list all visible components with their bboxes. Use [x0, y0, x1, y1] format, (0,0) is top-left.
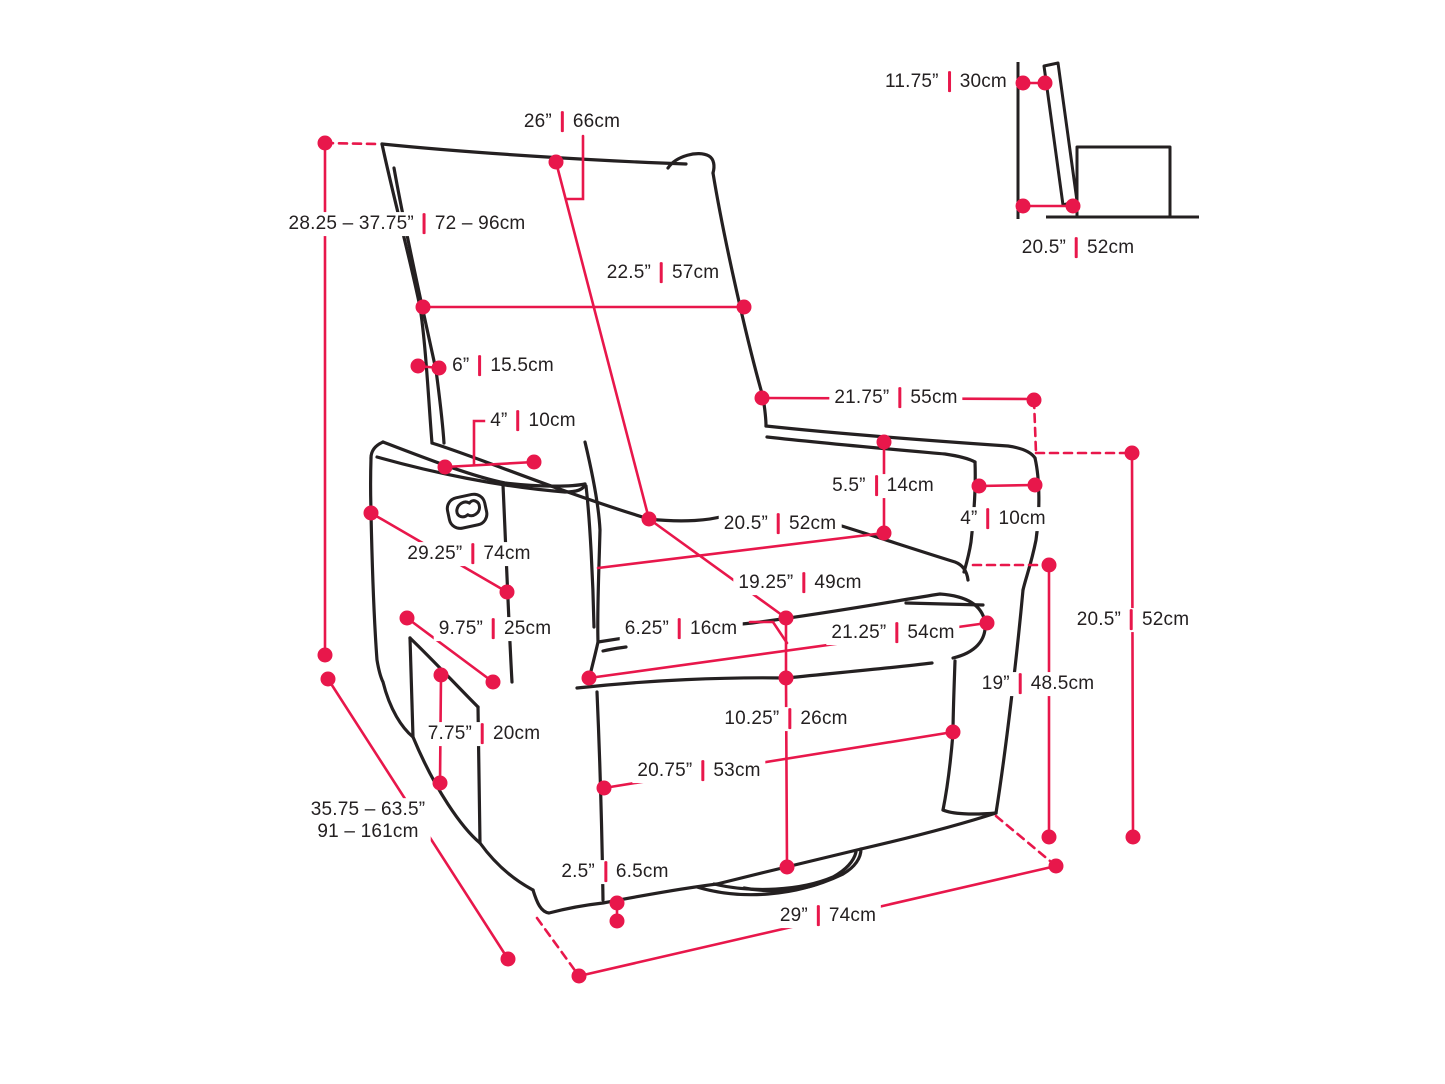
- cm-value: 53cm: [713, 760, 760, 782]
- unit-separator: [777, 514, 780, 535]
- dimension-label-overall-height-range: 28.25 – 37.75” 72 – 96cm: [284, 212, 531, 236]
- dimension-label-backrest-width: 22.5” 57cm: [602, 261, 725, 285]
- dimension-label-side-view-back-depth: 11.75” 30cm: [880, 70, 1012, 94]
- unit-separator: [701, 761, 704, 782]
- unit-separator: [478, 356, 481, 377]
- dimension-label-overall-width-diagonal: 29.25” 74cm: [402, 542, 535, 566]
- dimension-label-base-front-width: 21.25” 54cm: [826, 621, 959, 645]
- inches-value: 20.5”: [1077, 609, 1121, 631]
- cm-value: 54cm: [907, 622, 954, 644]
- inches-value: 28.25 – 37.75”: [289, 213, 414, 235]
- cm-value: 72 – 96cm: [435, 213, 526, 235]
- cm-value: 20cm: [493, 723, 540, 745]
- inches-value: 26”: [524, 111, 552, 133]
- inches-value: 6”: [452, 355, 469, 377]
- cm-value: 91 – 161cm: [311, 821, 426, 843]
- dimension-label-backrest-thickness: 6” 15.5cm: [447, 354, 559, 378]
- unit-separator: [788, 709, 791, 730]
- inches-value: 20.5”: [1022, 237, 1066, 259]
- inches-value: 29”: [780, 905, 808, 927]
- inches-value: 35.75 – 63.5”: [311, 799, 426, 821]
- unit-separator: [1019, 674, 1022, 695]
- cm-value: 55cm: [910, 387, 957, 409]
- unit-separator: [1075, 238, 1078, 259]
- cm-value: 52cm: [1142, 609, 1189, 631]
- dimension-label-left-armrest-width: 4” 10cm: [485, 409, 581, 433]
- cm-value: 66cm: [573, 111, 620, 133]
- dimension-label-seat-depth: 19.25” 49cm: [733, 571, 866, 595]
- cm-value: 52cm: [1087, 237, 1134, 259]
- dimension-label-base-clearance: 2.5” 6.5cm: [556, 860, 673, 884]
- unit-separator: [423, 214, 426, 235]
- unit-separator: [561, 112, 564, 133]
- inches-value: 2.5”: [561, 861, 595, 883]
- unit-separator: [948, 72, 951, 93]
- unit-separator: [987, 509, 990, 530]
- dimension-label-extended-depth-range: 35.75 – 63.5” 91 – 161cm: [306, 798, 431, 844]
- cm-value: 10cm: [999, 508, 1046, 530]
- cm-value: 30cm: [960, 71, 1007, 93]
- unit-separator: [875, 476, 878, 497]
- cm-value: 52cm: [789, 513, 836, 535]
- unit-separator: [817, 906, 820, 927]
- unit-separator: [517, 411, 520, 432]
- unit-separator: [492, 619, 495, 640]
- inches-value: 29.25”: [407, 543, 462, 565]
- cm-value: 57cm: [672, 262, 719, 284]
- unit-separator: [604, 862, 607, 883]
- inches-value: 9.75”: [439, 618, 483, 640]
- dimension-label-seat-cushion-thickness: 6.25” 16cm: [620, 617, 743, 641]
- unit-separator: [481, 724, 484, 745]
- cm-value: 74cm: [829, 905, 876, 927]
- dimension-label-base-height: 10.25” 26cm: [719, 707, 852, 731]
- dimension-label-inner-seat-width: 21.75” 55cm: [829, 386, 962, 410]
- inches-value: 19”: [982, 673, 1010, 695]
- dimension-diagram: 26” 66cm 28.25 – 37.75” 72 – 96cm 22.5” …: [0, 0, 1445, 1084]
- cm-value: 16cm: [690, 618, 737, 640]
- dimension-label-back-top-width: 26” 66cm: [519, 110, 625, 134]
- unit-separator: [1130, 610, 1133, 631]
- cm-value: 10cm: [529, 410, 576, 432]
- unit-separator: [678, 619, 681, 640]
- cm-value: 15.5cm: [490, 355, 554, 377]
- dimension-label-arm-height-floor: 20.5” 52cm: [1072, 608, 1195, 632]
- unit-separator: [471, 544, 474, 565]
- chair-outline: [371, 144, 1039, 913]
- cm-value: 48.5cm: [1031, 673, 1095, 695]
- unit-separator: [802, 573, 805, 594]
- inches-value: 10.25”: [724, 708, 779, 730]
- unit-separator: [895, 623, 898, 644]
- inches-value: 19.25”: [738, 572, 793, 594]
- dimension-label-pocket-width: 9.75” 25cm: [434, 617, 557, 641]
- inches-value: 4”: [490, 410, 507, 432]
- dimension-label-seat-width: 20.5” 52cm: [719, 512, 842, 536]
- inches-value: 6.25”: [625, 618, 669, 640]
- cm-value: 14cm: [887, 475, 934, 497]
- diagram-line-art: [0, 0, 1445, 1084]
- cm-value: 6.5cm: [616, 861, 669, 883]
- cm-value: 49cm: [814, 572, 861, 594]
- inches-value: 11.75”: [885, 71, 939, 93]
- dimension-label-seat-height: 19” 48.5cm: [977, 672, 1100, 696]
- power-button-icon: [445, 492, 489, 530]
- dimension-label-right-armrest-width: 4” 10cm: [955, 507, 1051, 531]
- unit-separator: [898, 388, 901, 409]
- cm-value: 25cm: [504, 618, 551, 640]
- inches-value: 7.75”: [428, 723, 472, 745]
- cm-value: 74cm: [483, 543, 530, 565]
- inches-value: 5.5”: [832, 475, 866, 497]
- dimension-label-base-depth: 20.75” 53cm: [632, 759, 765, 783]
- inches-value: 20.5”: [724, 513, 768, 535]
- dimension-label-overall-base-width: 29” 74cm: [775, 904, 881, 928]
- inches-value: 21.25”: [831, 622, 886, 644]
- unit-separator: [660, 263, 663, 284]
- dimension-label-side-view-seat-depth: 20.5” 52cm: [1017, 236, 1140, 260]
- cm-value: 26cm: [800, 708, 847, 730]
- inches-value: 4”: [960, 508, 977, 530]
- inches-value: 20.75”: [637, 760, 692, 782]
- inches-value: 21.75”: [834, 387, 889, 409]
- dimension-label-pocket-height: 7.75” 20cm: [423, 722, 546, 746]
- dimension-label-arm-height-above-seat: 5.5” 14cm: [827, 474, 939, 498]
- inches-value: 22.5”: [607, 262, 651, 284]
